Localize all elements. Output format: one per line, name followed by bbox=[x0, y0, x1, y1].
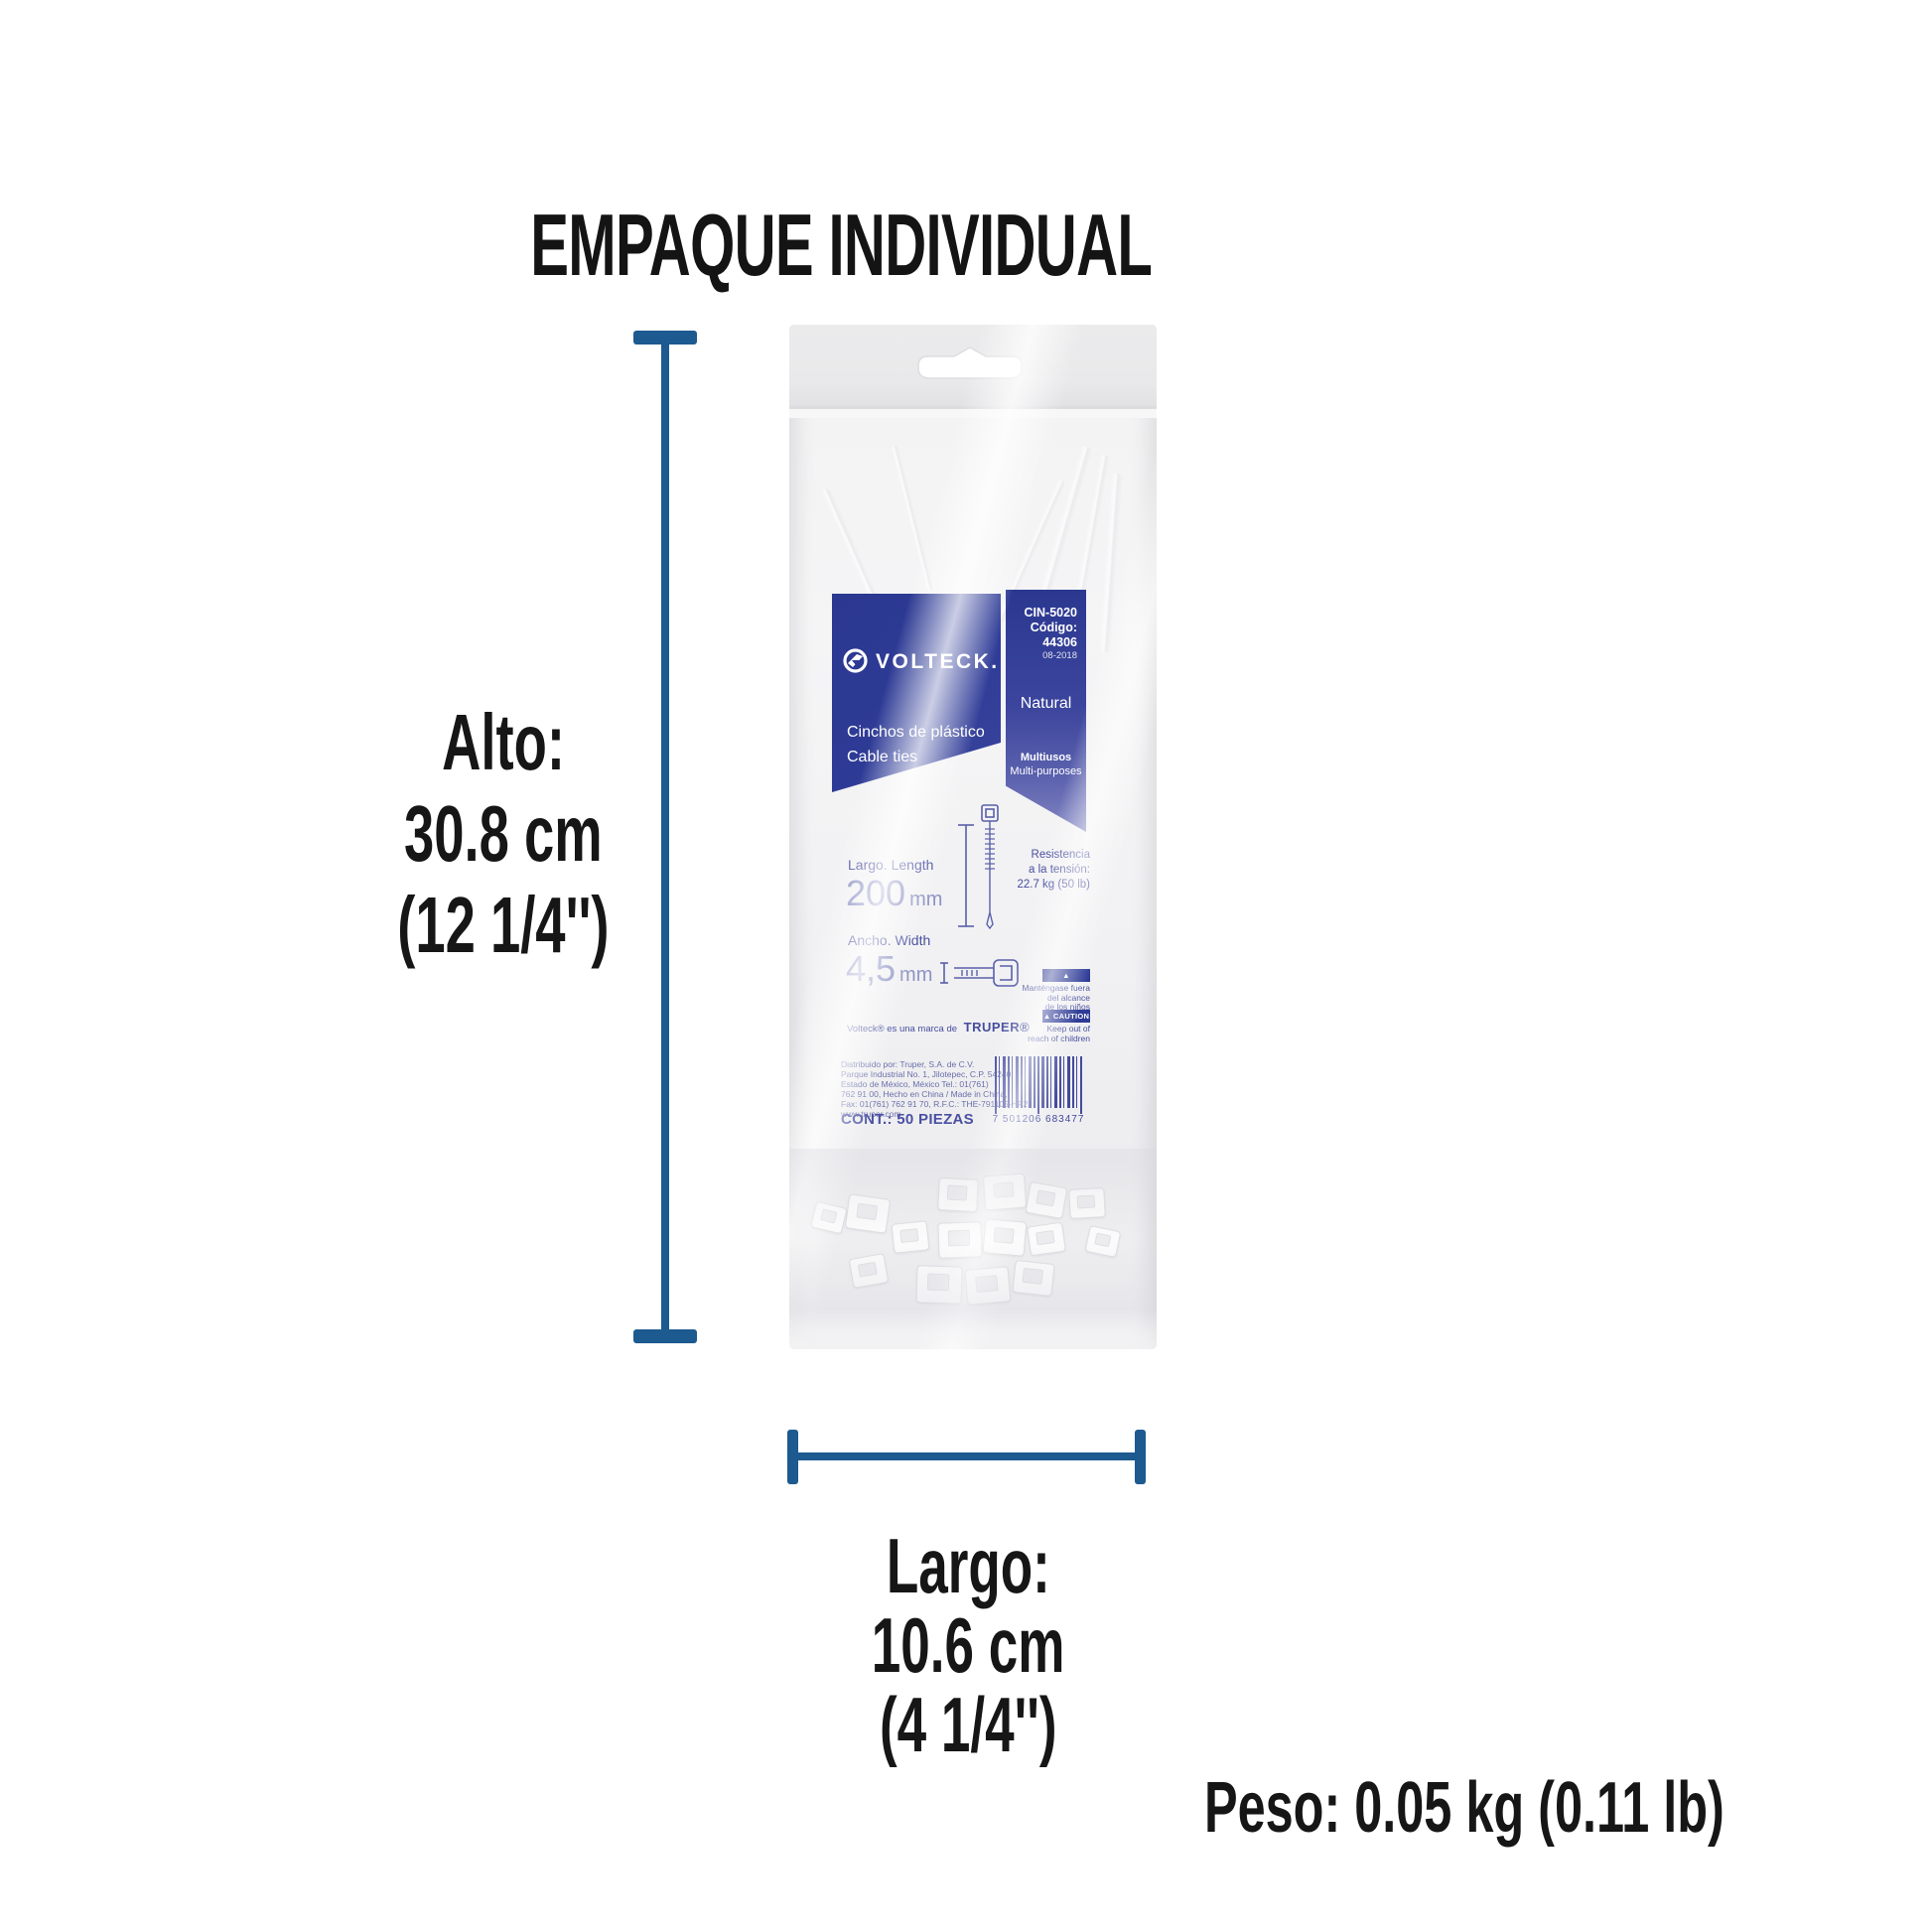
tie-width-label: Ancho. Width bbox=[848, 932, 930, 948]
height-dimension-label: Alto: 30.8 cm (12 1/4'') bbox=[318, 697, 689, 971]
barcode-guard bbox=[1080, 1056, 1082, 1114]
cable-tie-head-aperture bbox=[1094, 1232, 1112, 1247]
cable-tie-head bbox=[937, 1221, 982, 1259]
cable-tie-head-aperture bbox=[856, 1202, 878, 1220]
width-label: Largo: bbox=[886, 1521, 1049, 1611]
tie-length-label: Largo. Length bbox=[848, 857, 933, 873]
cable-tie-head bbox=[1085, 1225, 1122, 1258]
cable-tie-head bbox=[892, 1220, 930, 1253]
barcode bbox=[995, 1056, 1082, 1114]
use-en: Multi-purposes bbox=[1006, 765, 1086, 777]
tie-length-value: 200mm bbox=[846, 873, 942, 914]
cable-tie-head-aperture bbox=[858, 1261, 878, 1278]
cable-tie-head bbox=[810, 1201, 847, 1235]
cable-tie-head-aperture bbox=[926, 1274, 949, 1292]
barcode-digits: 7 501206 683477 bbox=[984, 1114, 1093, 1125]
label-panel-main: VOLTECK. Cinchos de plástico Cable ties bbox=[832, 594, 1001, 792]
cable-tie-head bbox=[937, 1177, 979, 1212]
cable-tie-head-aperture bbox=[820, 1208, 838, 1224]
cable-tie-head bbox=[1068, 1187, 1106, 1219]
attention-badge: ▲ ATENCIÓN bbox=[1042, 969, 1090, 982]
height-value-imperial: (12 1/4'') bbox=[397, 880, 609, 971]
page-title: EMPAQUE INDIVIDUAL bbox=[370, 195, 1184, 296]
cable-tie-head-aperture bbox=[1035, 1189, 1056, 1206]
cable-tie-head-aperture bbox=[993, 1227, 1015, 1244]
cable-tie-head bbox=[983, 1173, 1027, 1211]
width-value-metric: 10.6 cm bbox=[872, 1600, 1065, 1691]
width-value-imperial: (4 1/4'') bbox=[880, 1680, 1057, 1770]
tension-info: Resistencia a la tensión: 22.7 kg (50 lb… bbox=[983, 848, 1090, 893]
tie-width-number: 4,5 bbox=[846, 948, 896, 989]
brand-name: VOLTECK. bbox=[876, 650, 1000, 674]
width-measure-right-cap bbox=[1135, 1430, 1146, 1484]
width-dimension-label: Largo: 10.6 cm (4 1/4'') bbox=[769, 1521, 1167, 1759]
cable-tie-head-aperture bbox=[948, 1230, 970, 1247]
attention-text: Manténgase fuera del alcance de los niño… bbox=[1003, 984, 1090, 1013]
weight-text: Peso: 0.05 kg (0.11 lb) bbox=[1204, 1767, 1725, 1849]
cable-tie-head bbox=[849, 1253, 890, 1289]
width-measure-line bbox=[789, 1452, 1144, 1460]
caution-line-2: reach of children bbox=[1003, 1035, 1090, 1044]
cable-tie-head-aperture bbox=[1077, 1194, 1095, 1209]
barcode-guard bbox=[1037, 1056, 1039, 1114]
sku-code: CIN-5020 bbox=[1006, 606, 1077, 621]
bag-seam-highlight bbox=[789, 409, 1157, 418]
trademark-text: Volteck® es una marca de bbox=[847, 1024, 957, 1035]
tension-line-2: a la tensión: bbox=[983, 863, 1090, 878]
date-code: 08-2018 bbox=[1006, 650, 1077, 662]
tension-line-1: Resistencia bbox=[983, 848, 1090, 863]
trademark-line: Volteck® es una marca de TRUPER® bbox=[847, 1020, 1030, 1035]
product-codes: CIN-5020 Código: 44306 08-2018 bbox=[1006, 606, 1077, 662]
cable-tie-head bbox=[964, 1266, 1011, 1306]
cable-tie-strip bbox=[891, 445, 934, 591]
volteck-logo-icon bbox=[842, 647, 869, 674]
cable-tie-head-aperture bbox=[1035, 1230, 1054, 1246]
height-measure-bottom-cap bbox=[633, 1329, 697, 1343]
product-name-es: Cinchos de plástico bbox=[847, 724, 985, 742]
tie-length-unit: mm bbox=[909, 889, 942, 910]
cable-tie-head-aperture bbox=[947, 1185, 967, 1201]
hang-hole bbox=[914, 346, 1026, 382]
content-count: CONT.: 50 PIEZAS bbox=[841, 1111, 974, 1128]
height-value-metric: 30.8 cm bbox=[404, 788, 603, 880]
height-label: Alto: bbox=[442, 697, 565, 788]
product-name-en: Cable ties bbox=[847, 749, 917, 766]
tie-width-value: 4,5mm bbox=[846, 948, 932, 990]
cable-tie-head-aperture bbox=[900, 1228, 919, 1243]
product-package: VOLTECK. Cinchos de plástico Cable ties … bbox=[789, 325, 1157, 1349]
cable-tie-head bbox=[983, 1218, 1028, 1256]
cable-tie-head-aperture bbox=[975, 1275, 998, 1293]
label-panel-side: CIN-5020 Código: 44306 08-2018 Natural M… bbox=[1006, 590, 1086, 832]
tension-line-3: 22.7 kg (50 lb) bbox=[983, 878, 1090, 893]
cable-tie-head bbox=[1012, 1260, 1054, 1297]
screenshot-root: EMPAQUE INDIVIDUAL Alto: 30.8 cm (12 1/4… bbox=[0, 0, 1932, 1932]
use-es: Multiusos bbox=[1006, 752, 1086, 763]
color-name: Natural bbox=[1006, 695, 1086, 713]
barcode-guard bbox=[995, 1056, 997, 1114]
caution-badge: ▲ CAUTION bbox=[1042, 1010, 1090, 1023]
tie-length-number: 200 bbox=[846, 873, 905, 913]
tie-width-unit: mm bbox=[899, 964, 932, 986]
cable-tie-head bbox=[845, 1193, 891, 1233]
brand-row: VOLTECK. bbox=[842, 647, 869, 675]
numeric-code: Código: 44306 bbox=[1006, 621, 1077, 650]
weight-label: Peso: 0.05 kg (0.11 lb) bbox=[1204, 1767, 1932, 1849]
cable-tie-head bbox=[915, 1265, 962, 1305]
cable-tie-head-aperture bbox=[1023, 1268, 1043, 1285]
cable-tie-head-aperture bbox=[993, 1181, 1014, 1198]
cable-tie-head bbox=[1027, 1222, 1066, 1257]
truper-brand: TRUPER® bbox=[964, 1020, 1031, 1035]
cable-tie-head bbox=[1026, 1181, 1068, 1219]
page-title-text: EMPAQUE INDIVIDUAL bbox=[530, 195, 1152, 296]
